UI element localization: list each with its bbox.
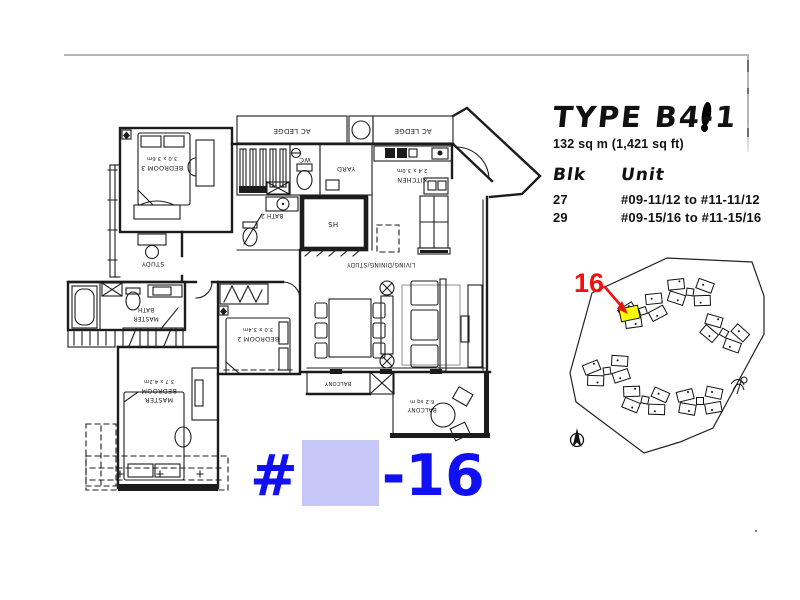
room-label-ac-ledge-right: AC LEDGE xyxy=(394,127,431,135)
unit-column-header: Unit xyxy=(620,165,797,185)
unit-area: 132 sq m (1,421 sq ft) xyxy=(553,137,795,151)
building-cluster xyxy=(581,353,631,388)
bay-window xyxy=(108,165,120,277)
page-border-mark xyxy=(747,88,749,94)
room-label-yard: YARD xyxy=(337,165,356,173)
exhaust-fan-icon xyxy=(349,116,373,143)
kitchen-room xyxy=(372,144,452,254)
entrance xyxy=(453,108,540,197)
building-cluster xyxy=(696,308,751,357)
floorplan-sheet: AC LEDGE AC LEDGE WC YARD 2.4 x 3.0m KIT… xyxy=(0,0,800,600)
page-border-mark xyxy=(747,60,749,72)
room-label-living: LIVING/DINING/STUDY xyxy=(347,261,416,267)
blk-value: 29 xyxy=(553,210,621,225)
room-dims-balcony-right: 6.2 sq m xyxy=(410,398,435,404)
room-label-balcony-left: BALCONY xyxy=(324,380,351,386)
utility-louvres xyxy=(237,144,290,195)
building-cluster xyxy=(619,381,671,419)
tv-console xyxy=(468,285,482,367)
unit-pointer-arrow xyxy=(604,286,628,314)
room-dims-bedroom2: 3.0 x 3.4m xyxy=(243,326,273,332)
room-label-ac-ledge-left: AC LEDGE xyxy=(273,127,310,135)
stamp-prefix: # xyxy=(250,448,298,505)
window-diamond-icon xyxy=(219,306,228,316)
bedroom3-room xyxy=(120,128,232,232)
room-label-kitchen: KITCHEN xyxy=(397,176,427,184)
building-cluster xyxy=(676,386,723,415)
room-dims-kitchen: 2.4 x 3.0m xyxy=(397,167,427,173)
unit-type-title: TYPE B4-1 xyxy=(551,100,797,134)
room-label-master-1: MASTER xyxy=(145,396,174,404)
building-cluster xyxy=(664,274,714,309)
north-arrow-icon xyxy=(571,428,584,447)
room-label-master-bath-2: BATH xyxy=(138,306,154,312)
site-map: 16 xyxy=(552,248,792,460)
room-label-bedroom3: BEDROOM 3 xyxy=(141,164,183,172)
study-room xyxy=(138,232,182,282)
room-label-bath2: BATH 2 xyxy=(261,212,283,218)
dining-table xyxy=(329,299,371,357)
unit-range: #09-11/12 to #11-11/12 xyxy=(621,192,795,207)
room-dims-master: 3.7 x 4.2m xyxy=(144,378,174,384)
fridge xyxy=(377,225,399,252)
balcony-large xyxy=(390,372,490,441)
living-dining-area xyxy=(315,279,482,371)
room-label-balcony-right: BALCONY xyxy=(407,406,437,412)
blk-value: 27 xyxy=(553,192,621,207)
planter-boxes xyxy=(86,424,228,490)
blk-unit-table: Blk Unit 27 #09-11/12 to #11-11/12 29 #0… xyxy=(553,165,795,225)
bath2-room xyxy=(237,195,372,250)
wc-room xyxy=(290,144,320,195)
room-label-master-2: BEDROOM xyxy=(141,387,177,395)
master-bedroom-room xyxy=(118,347,218,491)
highlighted-unit-label: 16 xyxy=(574,268,604,298)
room-label-wc: WC xyxy=(299,156,311,164)
scan-artifact xyxy=(755,530,757,532)
unit-range: #09-15/16 to #11-15/16 xyxy=(621,210,795,225)
stamp-suffix: -16 xyxy=(382,448,485,505)
room-dims-bedroom3: 3.0 x 3.6m xyxy=(147,155,177,161)
room-label-master-bath-1: MASTER xyxy=(133,315,158,321)
room-label-bedroom2: BEDROOM 2 xyxy=(237,335,279,343)
page-border-top xyxy=(64,54,749,56)
room-label-study: STUDY xyxy=(142,260,165,268)
room-label-hs: HS xyxy=(328,220,339,228)
window-diamond-icon xyxy=(122,130,131,140)
unit-number-stamp: # -16 xyxy=(250,438,485,514)
blk-column-header: Blk xyxy=(552,165,623,185)
title-block: TYPE B4-1 132 sq m (1,421 sq ft) Blk Uni… xyxy=(553,100,795,225)
ac-shaft-icon xyxy=(102,283,122,296)
stamp-redaction-box xyxy=(302,440,379,506)
ac-shaft-icon xyxy=(267,182,289,194)
